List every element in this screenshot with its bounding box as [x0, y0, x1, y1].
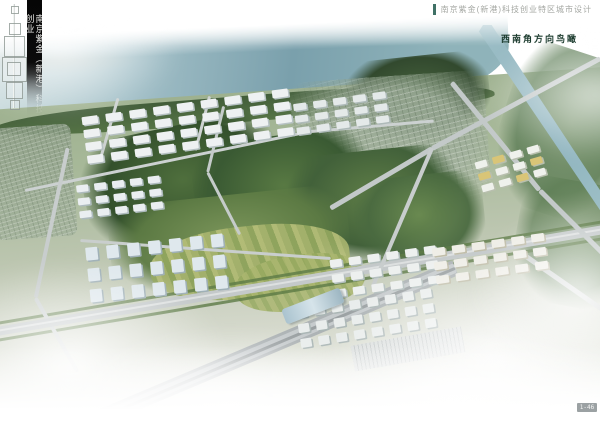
building: [180, 127, 197, 137]
building: [97, 208, 110, 216]
building: [277, 127, 294, 137]
building: [315, 320, 327, 331]
building: [388, 265, 401, 275]
building: [436, 274, 450, 284]
building: [204, 124, 221, 134]
deco-square: [11, 6, 19, 14]
building: [526, 144, 539, 154]
building: [405, 248, 418, 258]
deco-square: [4, 36, 25, 57]
building: [151, 201, 164, 209]
building: [402, 291, 414, 302]
building: [253, 130, 270, 140]
building: [390, 280, 403, 290]
building: [176, 102, 193, 112]
building: [371, 326, 383, 337]
building: [95, 195, 108, 203]
building: [471, 241, 485, 251]
building: [409, 278, 422, 288]
building: [498, 177, 511, 187]
building: [129, 108, 146, 118]
building: [105, 112, 122, 122]
building: [407, 263, 420, 273]
building: [350, 271, 363, 281]
building: [182, 140, 199, 150]
building: [535, 261, 549, 271]
building: [226, 108, 243, 118]
building: [352, 286, 365, 296]
building: [94, 182, 107, 190]
building: [148, 240, 161, 254]
building: [272, 88, 289, 98]
building: [133, 134, 150, 144]
building: [313, 100, 327, 109]
building: [134, 147, 151, 157]
building: [495, 166, 508, 176]
building: [371, 283, 384, 293]
building: [509, 149, 522, 159]
building: [273, 101, 290, 111]
building: [210, 233, 223, 247]
deco-squares-ornament: [0, 0, 30, 130]
building: [112, 180, 125, 188]
sidebar-title-text: 南京紫金（新港）科技创业: [25, 0, 45, 120]
document-page: 南京紫金（新港）科技创业 南京紫金(新港)科技创业特区城市设计 西南角方向鸟瞰 …: [0, 0, 600, 424]
deco-square: [6, 82, 23, 99]
deco-square: [10, 100, 20, 110]
building: [108, 265, 121, 279]
building: [376, 115, 390, 124]
building: [351, 314, 363, 325]
building: [516, 172, 529, 182]
building: [422, 303, 434, 314]
building: [298, 323, 310, 334]
page-number-badge: 1-46: [577, 403, 597, 412]
building: [451, 244, 465, 254]
building: [318, 335, 330, 346]
building: [213, 254, 226, 268]
building: [156, 131, 173, 141]
building: [352, 94, 366, 103]
building: [106, 244, 119, 258]
building: [76, 184, 89, 192]
teal-accent-bar-icon: [433, 4, 436, 15]
header-title-text: 南京紫金(新港)科技创业特区城市设计: [441, 4, 592, 15]
building: [178, 115, 195, 125]
building: [389, 323, 401, 334]
building: [425, 318, 437, 329]
sidebar-title-bar: 南京紫金（新港）科技创业: [27, 0, 42, 120]
building: [87, 267, 100, 281]
building: [81, 115, 98, 125]
building: [131, 190, 144, 198]
building: [404, 306, 416, 317]
building: [316, 123, 330, 132]
building: [474, 159, 487, 169]
building: [354, 106, 368, 115]
building: [206, 137, 223, 147]
building: [169, 238, 182, 252]
building: [85, 247, 98, 261]
building: [131, 284, 144, 298]
building: [420, 288, 432, 299]
building: [333, 97, 347, 106]
building: [512, 161, 525, 171]
building: [194, 277, 207, 291]
building: [329, 258, 342, 268]
building: [131, 121, 148, 131]
building: [202, 111, 219, 121]
building: [367, 253, 380, 263]
building: [369, 268, 382, 278]
building: [336, 332, 348, 343]
building: [332, 273, 345, 283]
building: [473, 255, 487, 265]
building: [130, 178, 143, 186]
building: [432, 247, 446, 257]
building: [353, 329, 365, 340]
aerial-rendering: [0, 0, 600, 424]
building: [296, 126, 310, 135]
building: [251, 117, 268, 127]
building: [129, 263, 142, 277]
building: [531, 233, 545, 243]
building: [113, 193, 126, 201]
building: [530, 156, 543, 166]
building: [83, 128, 100, 138]
building: [153, 105, 170, 115]
bottom-white-fade: [0, 346, 600, 424]
building: [495, 266, 509, 276]
building: [228, 121, 245, 131]
building: [493, 252, 507, 262]
building: [192, 257, 205, 271]
building: [295, 114, 309, 123]
building: [147, 175, 160, 183]
building: [158, 144, 175, 154]
building: [250, 105, 267, 115]
building: [224, 95, 241, 105]
building: [215, 275, 228, 289]
building: [229, 134, 246, 144]
building: [481, 182, 494, 192]
building: [85, 141, 102, 151]
building: [133, 203, 146, 211]
building: [533, 167, 546, 177]
building: [374, 103, 388, 112]
building: [348, 256, 361, 266]
building: [533, 247, 547, 257]
building: [171, 259, 184, 273]
building: [155, 118, 172, 128]
building: [173, 280, 186, 294]
building: [78, 197, 91, 205]
building: [109, 137, 126, 147]
building: [115, 206, 128, 214]
building: [87, 154, 104, 164]
building: [293, 102, 307, 111]
view-direction-label: 西南角方向鸟瞰: [501, 32, 578, 45]
building: [455, 272, 469, 282]
building: [387, 309, 399, 320]
building: [434, 261, 448, 271]
building: [475, 269, 489, 279]
building: [349, 299, 361, 310]
building: [492, 154, 505, 164]
building: [152, 282, 165, 296]
building: [366, 297, 378, 308]
building: [511, 236, 525, 246]
building: [356, 118, 370, 127]
header-title-block: 南京紫金(新港)科技创业特区城市设计: [433, 4, 592, 15]
building: [386, 251, 399, 261]
building: [384, 294, 396, 305]
building: [190, 236, 203, 250]
building: [149, 188, 162, 196]
building: [107, 125, 124, 135]
building: [150, 261, 163, 275]
building: [513, 249, 527, 259]
building: [336, 121, 350, 130]
building: [110, 286, 123, 300]
building: [275, 114, 292, 124]
building: [79, 210, 92, 218]
building: [200, 98, 217, 108]
building: [127, 242, 140, 256]
building: [314, 111, 328, 120]
building: [90, 288, 103, 302]
building: [453, 258, 467, 268]
building: [369, 311, 381, 322]
building: [478, 171, 491, 181]
building: [333, 317, 345, 328]
deco-square: [9, 23, 21, 35]
deco-square: [7, 62, 21, 76]
building: [491, 238, 505, 248]
building: [334, 109, 348, 118]
building: [372, 91, 386, 100]
building: [248, 92, 265, 102]
building: [515, 263, 529, 273]
building: [407, 321, 419, 332]
building: [111, 150, 128, 160]
